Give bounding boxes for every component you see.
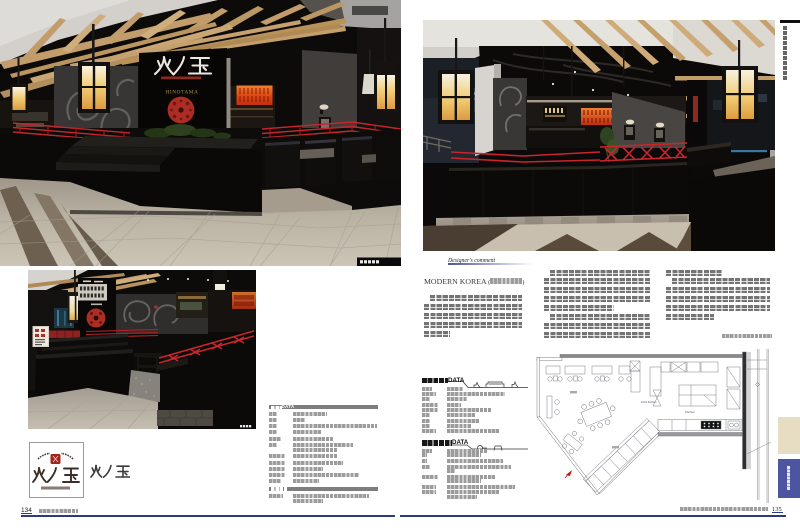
svg-text:HINOTAMA: HINOTAMA <box>166 90 199 96</box>
svg-text:Drink Kitchen: Drink Kitchen <box>641 400 657 404</box>
svg-text:Kitchen: Kitchen <box>685 410 695 414</box>
